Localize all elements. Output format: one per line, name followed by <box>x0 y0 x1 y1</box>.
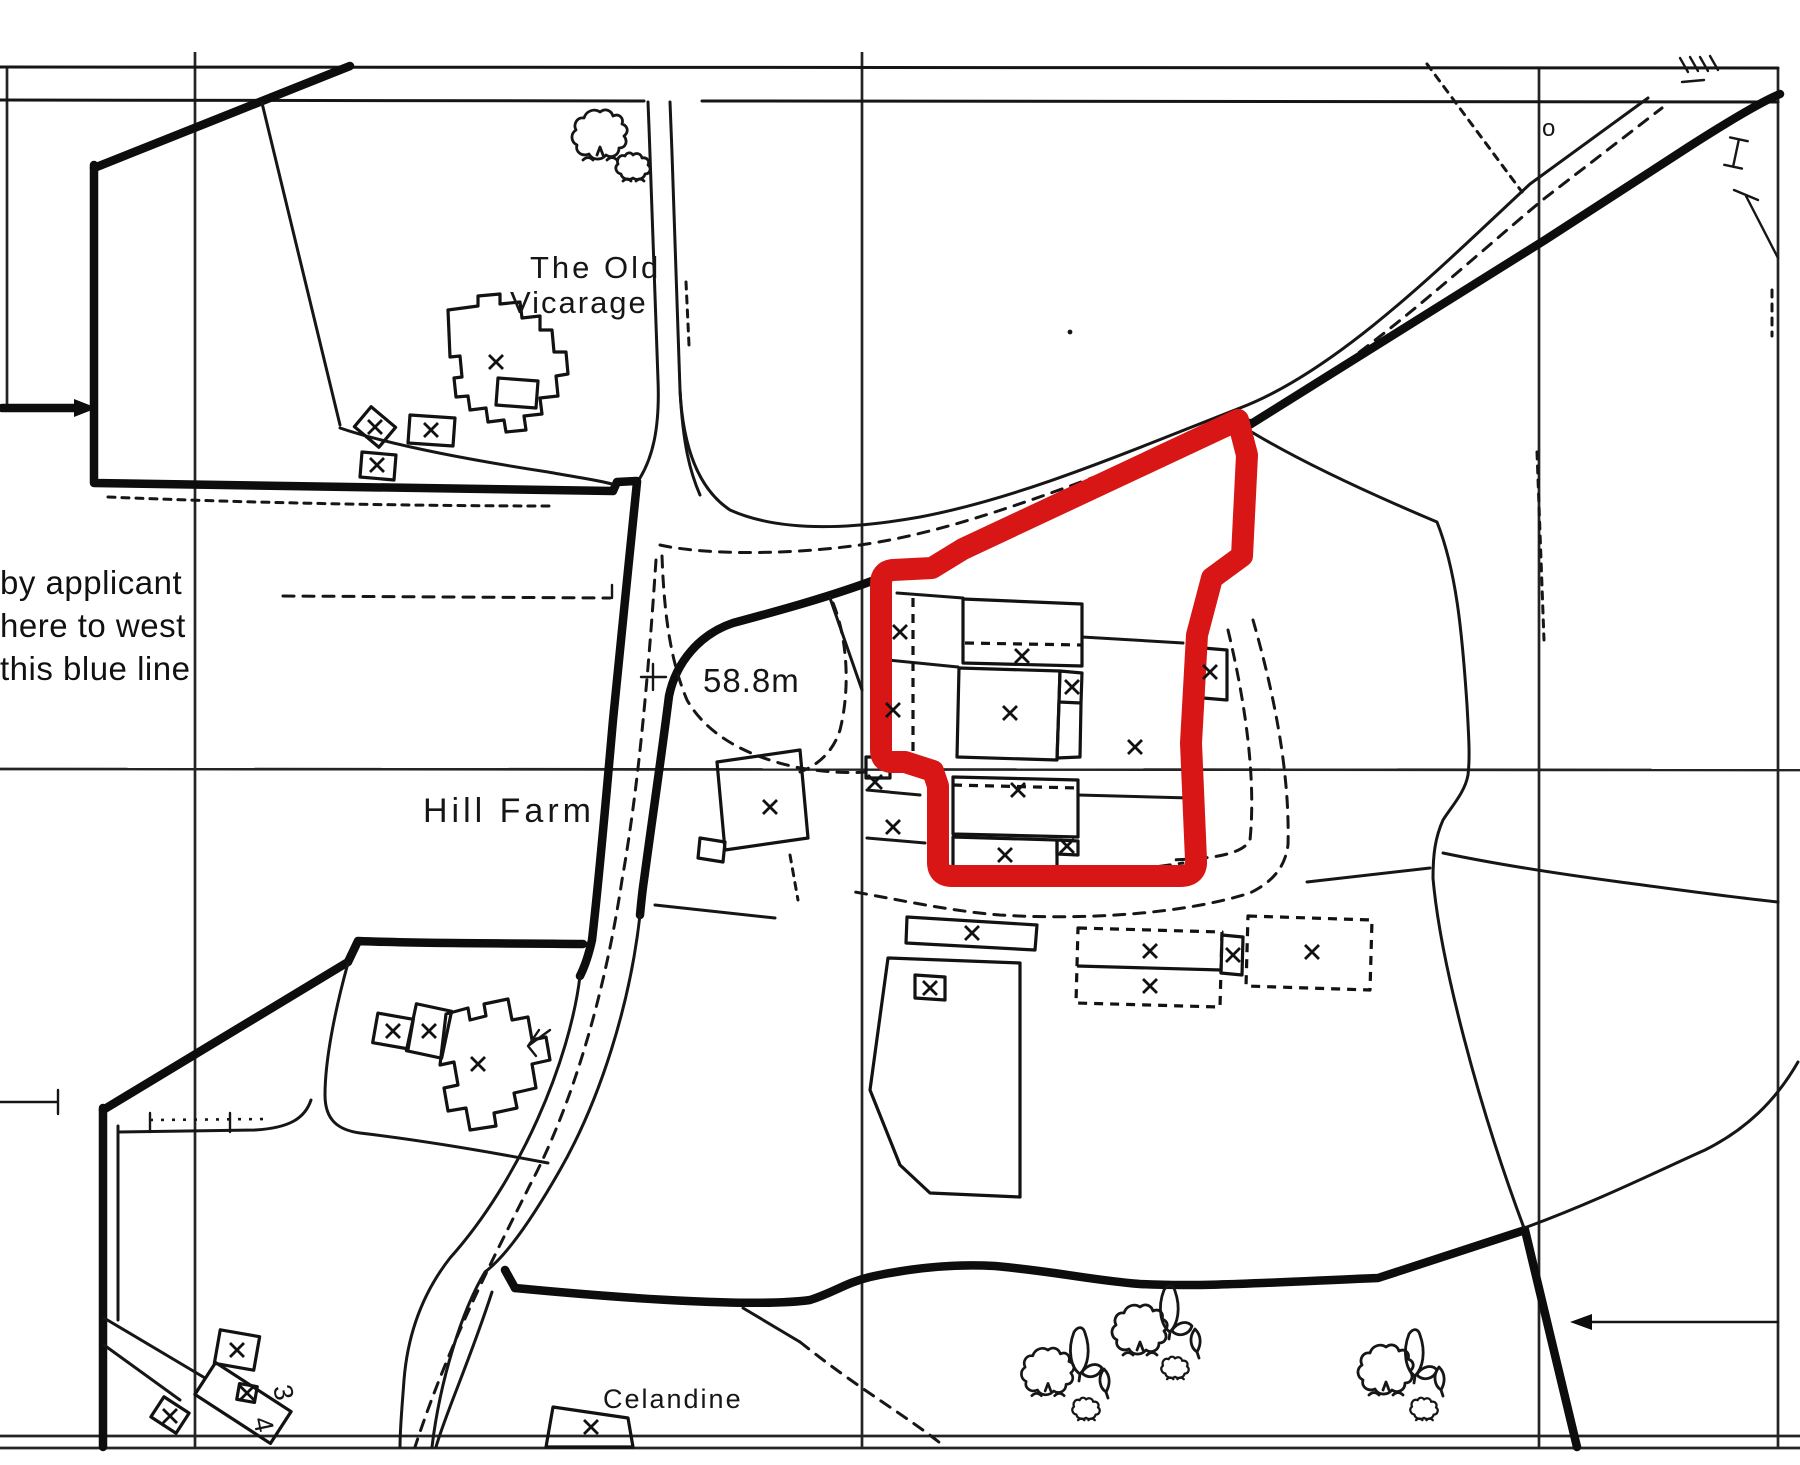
application-site-boundary <box>881 420 1247 876</box>
boundary-layer <box>94 66 1577 1447</box>
building-cross-mark <box>422 1024 436 1038</box>
building-cross-mark <box>1226 948 1240 962</box>
building-cross-mark <box>763 800 777 814</box>
label-hill-farm: Hill Farm <box>423 792 595 830</box>
building-cross-mark <box>1015 649 1029 663</box>
tree-symbols <box>572 110 1444 1420</box>
spot-height-cross <box>641 664 666 690</box>
shrub-symbol <box>1161 1357 1188 1380</box>
building-cross-mark <box>424 423 438 437</box>
annotation-line-1: by applicant <box>0 561 190 604</box>
building-cross-mark <box>1143 944 1157 958</box>
tree-symbol <box>572 110 627 160</box>
left-annotation: by applicant here to west this blue line <box>0 561 190 690</box>
shrub-symbol <box>1410 1398 1437 1421</box>
annotation-line-2: here to west <box>0 604 190 647</box>
sapling-symbol <box>1405 1330 1437 1383</box>
building-cross-mark <box>584 1420 598 1434</box>
building-cross-mark <box>1128 740 1142 754</box>
building-cross-mark <box>893 625 907 639</box>
site-plan-page: The Old Vicarage Hill Farm 58.8m Celandi… <box>0 0 1800 1465</box>
building-cross-mark <box>965 926 979 940</box>
left-tbar-mark <box>0 1090 58 1114</box>
building-cross-mark <box>163 1409 177 1423</box>
label-small-o: o <box>1542 115 1555 142</box>
label-celandine: Celandine <box>603 1384 743 1414</box>
tree-symbol <box>1112 1305 1167 1355</box>
survey-i-mark <box>1724 137 1747 168</box>
halfleaf-symbol <box>1435 1367 1444 1396</box>
building-cross-mark <box>370 458 384 472</box>
map-labels: The Old Vicarage Hill Farm 58.8m Celandi… <box>247 115 1555 1435</box>
building-cross-mark <box>471 1057 485 1071</box>
shrub-symbol <box>1072 1398 1099 1421</box>
site-plan-map: The Old Vicarage Hill Farm 58.8m Celandi… <box>0 0 1800 1465</box>
survey-tick-mark <box>1734 190 1778 258</box>
label-house-3: 3 <box>267 1382 299 1403</box>
building-cross-mark <box>386 1024 400 1038</box>
building-cross-marks <box>163 355 1319 1434</box>
shrub-symbol <box>616 153 650 181</box>
label-old-vicarage-line1: The Old <box>530 250 661 285</box>
building-cross-mark <box>230 1343 244 1357</box>
tree-symbol <box>1021 1348 1073 1396</box>
building-cross-mark <box>489 355 503 369</box>
label-spot-height: 58.8m <box>703 662 800 699</box>
building-cross-mark <box>998 848 1012 862</box>
building-cross-mark <box>1065 680 1079 694</box>
field-lines-layer <box>104 103 1798 1447</box>
label-house-4: 4 <box>247 1414 279 1435</box>
label-old-vicarage-line2: Vicarage <box>510 285 648 320</box>
building-cross-mark <box>1143 979 1157 993</box>
building-cross-mark <box>1003 706 1017 720</box>
building-cross-mark <box>886 820 900 834</box>
halfleaf-symbol <box>1191 1329 1200 1358</box>
building-cross-mark <box>240 1386 254 1400</box>
annotation-line-3: this blue line <box>0 647 190 690</box>
sapling-symbol <box>1070 1328 1102 1381</box>
building-cross-mark <box>923 981 937 995</box>
building-cross-mark <box>368 420 382 434</box>
building-cross-mark <box>1305 945 1319 959</box>
halfleaf-symbol <box>1100 1369 1109 1398</box>
